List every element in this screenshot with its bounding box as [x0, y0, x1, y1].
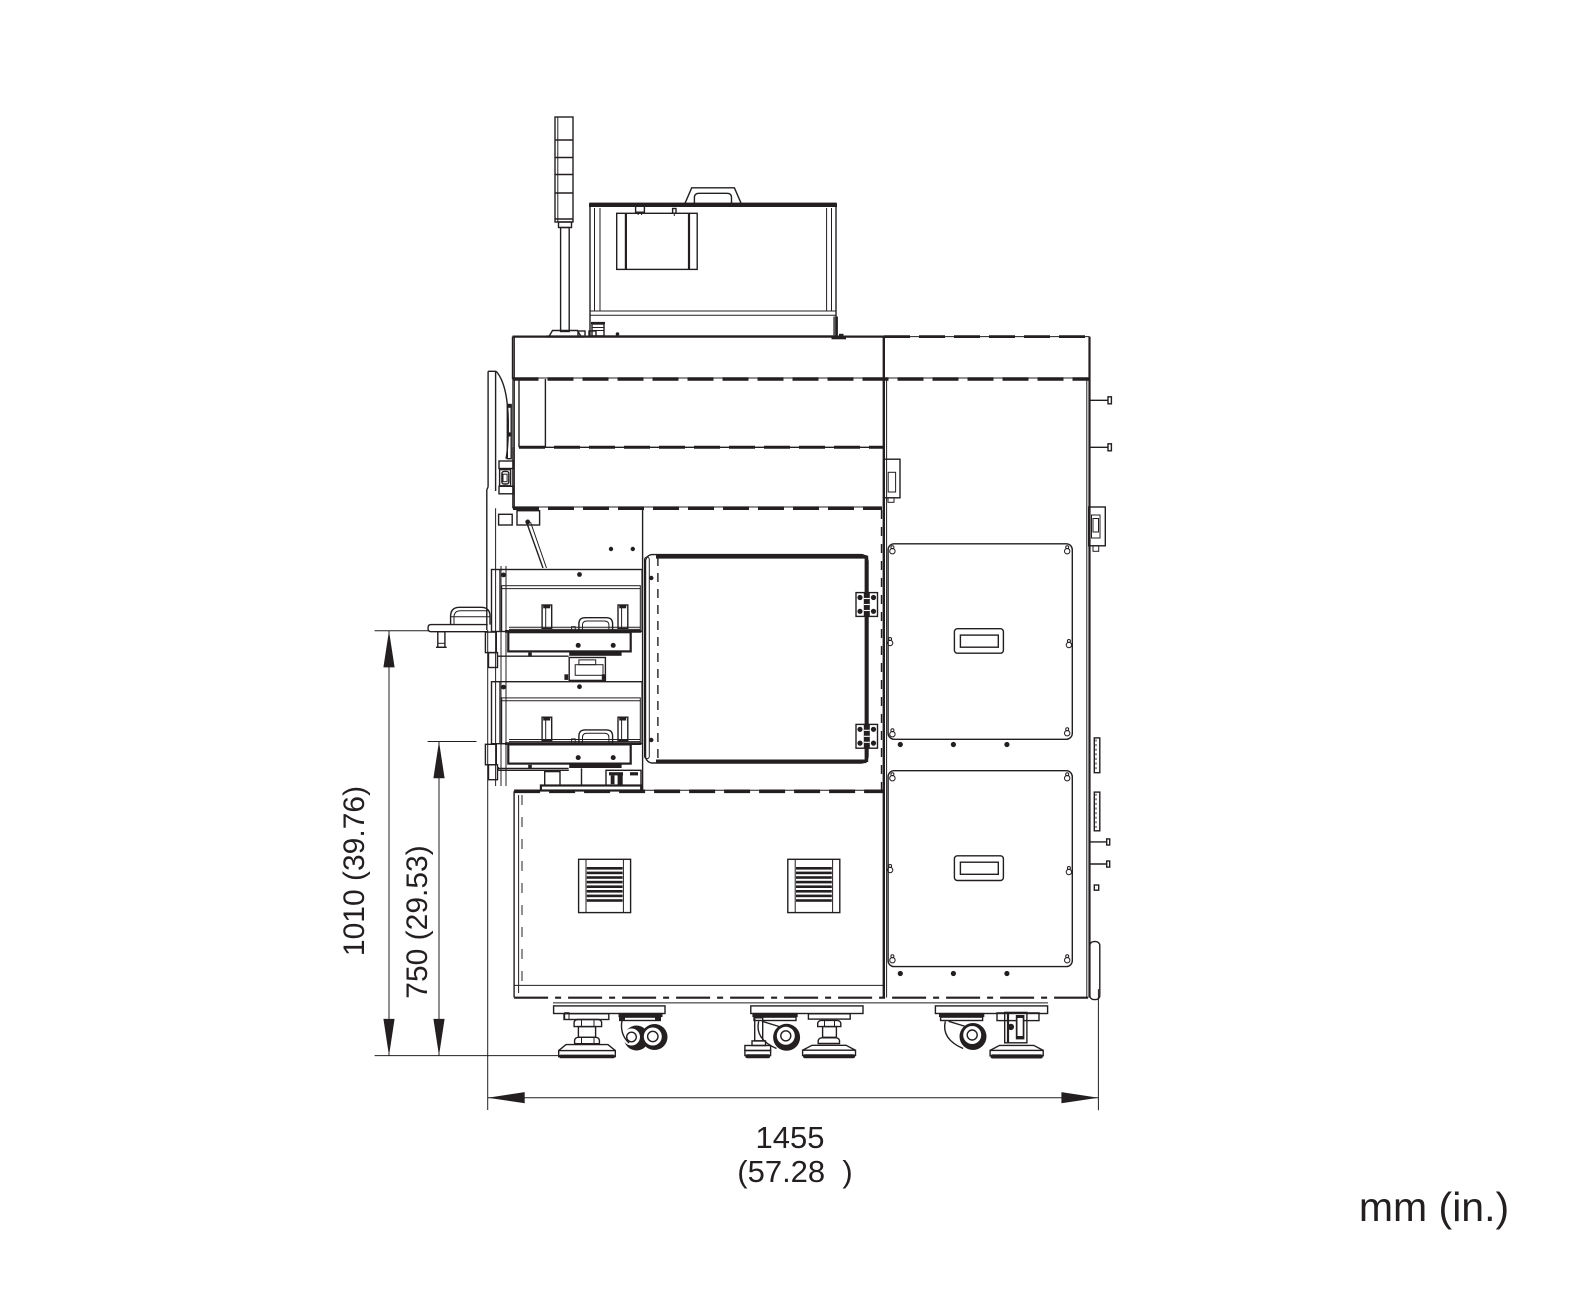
svg-text:1455: 1455 [756, 1120, 825, 1155]
svg-text:1010 (39.76): 1010 (39.76) [338, 786, 371, 956]
svg-text:(57.28 ): (57.28 ) [737, 1154, 852, 1189]
svg-text:750 (29.53): 750 (29.53) [401, 845, 434, 998]
svg-text:mm (in.): mm (in.) [1359, 1184, 1509, 1230]
